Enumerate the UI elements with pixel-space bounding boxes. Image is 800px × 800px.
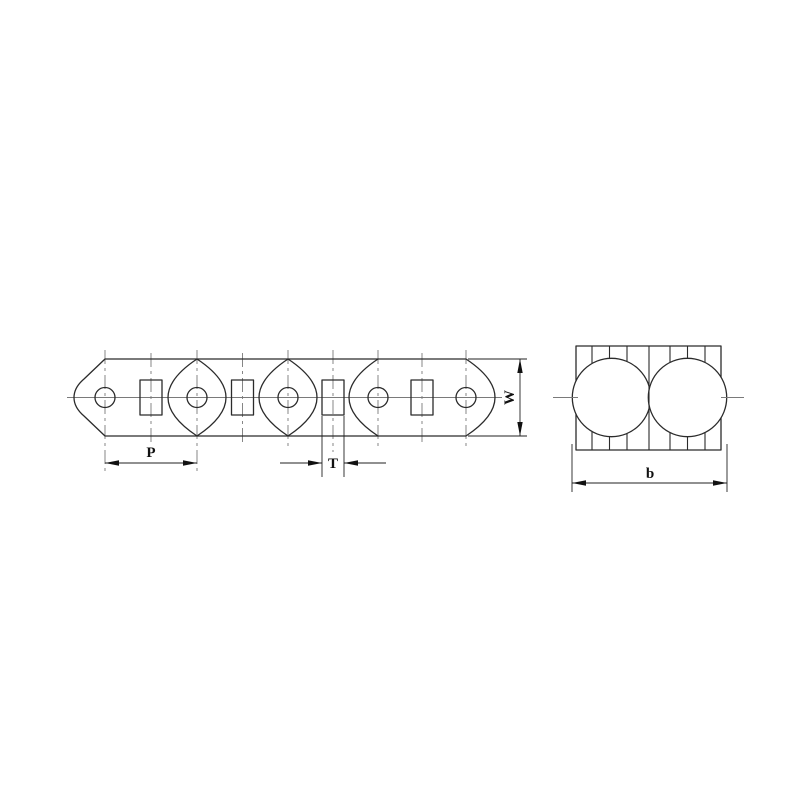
w-dimension-label: W <box>502 390 518 405</box>
t-arrow-left <box>308 460 322 465</box>
p-arrow-left <box>105 460 119 465</box>
t-arrow-right <box>344 460 358 465</box>
b-arrow-left <box>572 480 586 485</box>
p-arrow-right <box>183 460 197 465</box>
dimension-b: b <box>572 444 727 492</box>
drawing-canvas: P T W <box>0 0 800 800</box>
side-view-centerlines <box>67 350 502 474</box>
technical-drawing: P T W <box>0 0 800 800</box>
dimension-p: P <box>105 445 197 466</box>
b-arrow-right <box>713 480 727 485</box>
w-arrow-bottom <box>517 422 522 436</box>
side-view: P T W <box>67 350 527 477</box>
roller-right <box>648 358 726 436</box>
roller-left <box>572 358 650 436</box>
b-dimension-label: b <box>646 466 654 482</box>
p-dimension-label: P <box>146 445 155 461</box>
end-view: b <box>553 346 744 492</box>
t-dimension-label: T <box>328 456 338 472</box>
w-arrow-top <box>517 359 522 373</box>
